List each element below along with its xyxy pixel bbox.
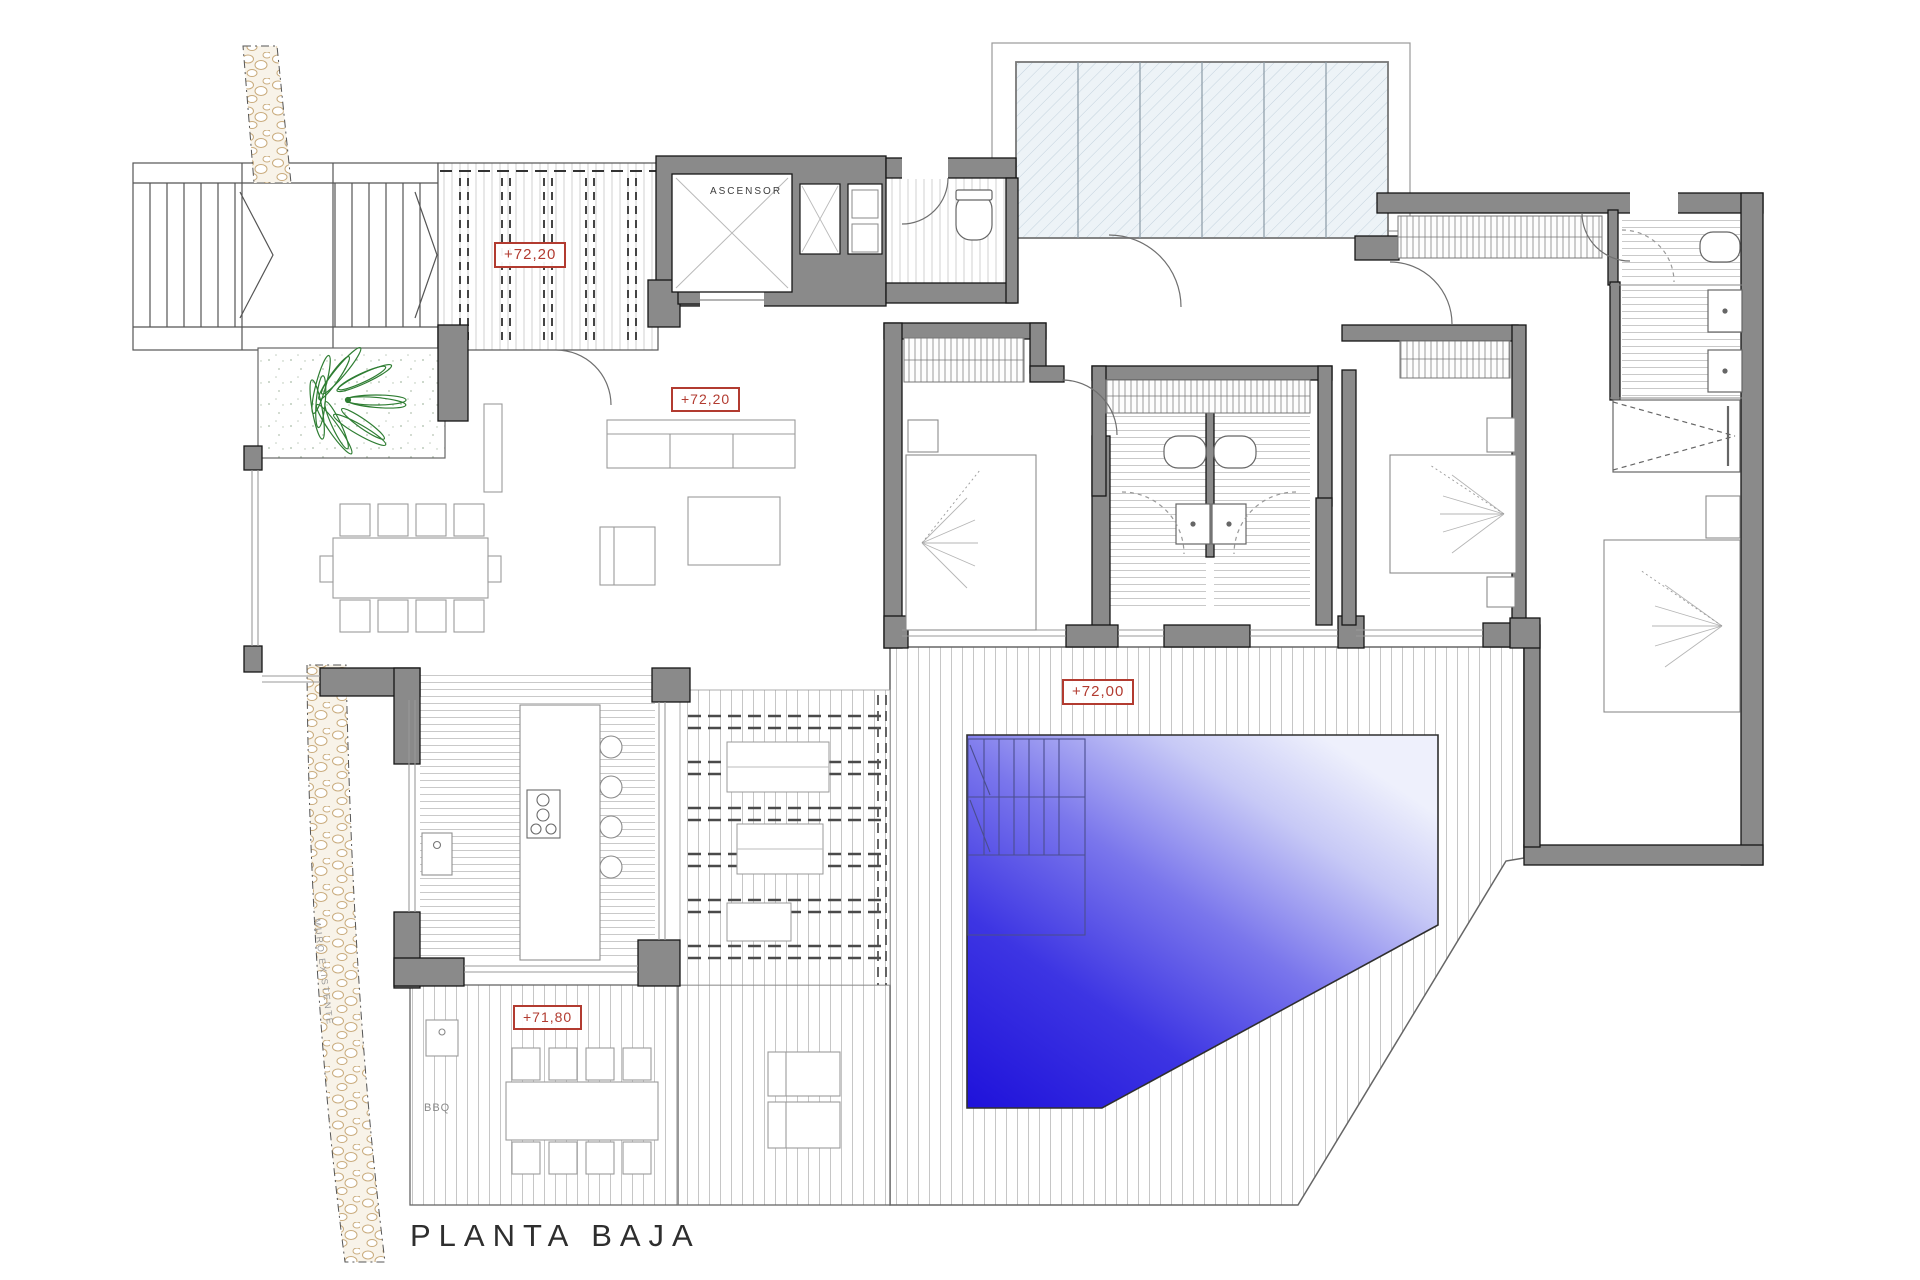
skylight-glass-roof bbox=[992, 43, 1410, 238]
tv-sideboard bbox=[484, 404, 502, 492]
wardrobe-bathrooms bbox=[1106, 380, 1310, 413]
bbq-label: BBQ bbox=[424, 1102, 450, 1114]
toilet-icon bbox=[956, 190, 992, 240]
sofa-set bbox=[600, 420, 795, 585]
elevator-label: ASCENSOR bbox=[676, 186, 816, 197]
level-marker-living: +72,20 bbox=[671, 387, 740, 412]
level-marker-bbq-terrace: +71,80 bbox=[513, 1005, 582, 1030]
bed-bedroom1 bbox=[906, 420, 1036, 630]
entry-stairs bbox=[133, 163, 438, 350]
wardrobe-bedroom1 bbox=[904, 338, 1024, 382]
closet-wing bbox=[1613, 400, 1740, 472]
cooktop-icon bbox=[527, 790, 560, 838]
floor-plan-drawing bbox=[0, 0, 1920, 1280]
kitchen-sink-icon bbox=[422, 833, 452, 875]
bed-bedroom2 bbox=[1390, 418, 1516, 607]
dining-table bbox=[320, 504, 501, 632]
floor-title: PLANTA BAJA bbox=[410, 1218, 701, 1254]
sink-icon bbox=[1708, 290, 1742, 332]
level-marker-pool-deck: +72,00 bbox=[1062, 679, 1134, 705]
entry-patio bbox=[258, 345, 445, 458]
sink-icon bbox=[1212, 504, 1246, 544]
sink-icon bbox=[1708, 350, 1742, 392]
sink-icon bbox=[1176, 504, 1210, 544]
toilet-icon bbox=[1214, 436, 1256, 468]
bed-wing bbox=[1604, 496, 1740, 712]
bbq-unit bbox=[426, 1020, 458, 1056]
toilet-icon bbox=[1700, 232, 1740, 262]
pergola-terrace bbox=[680, 690, 890, 985]
wardrobe-hallway bbox=[1398, 216, 1602, 258]
toilet-icon bbox=[1164, 436, 1206, 468]
wardrobe-bedroom2 bbox=[1400, 341, 1510, 378]
floor-plan-page: ASCENSOR +72,20 +72,20 +72,00 +71,80 BBQ… bbox=[0, 0, 1920, 1280]
level-marker-entry: +72,20 bbox=[494, 242, 566, 268]
